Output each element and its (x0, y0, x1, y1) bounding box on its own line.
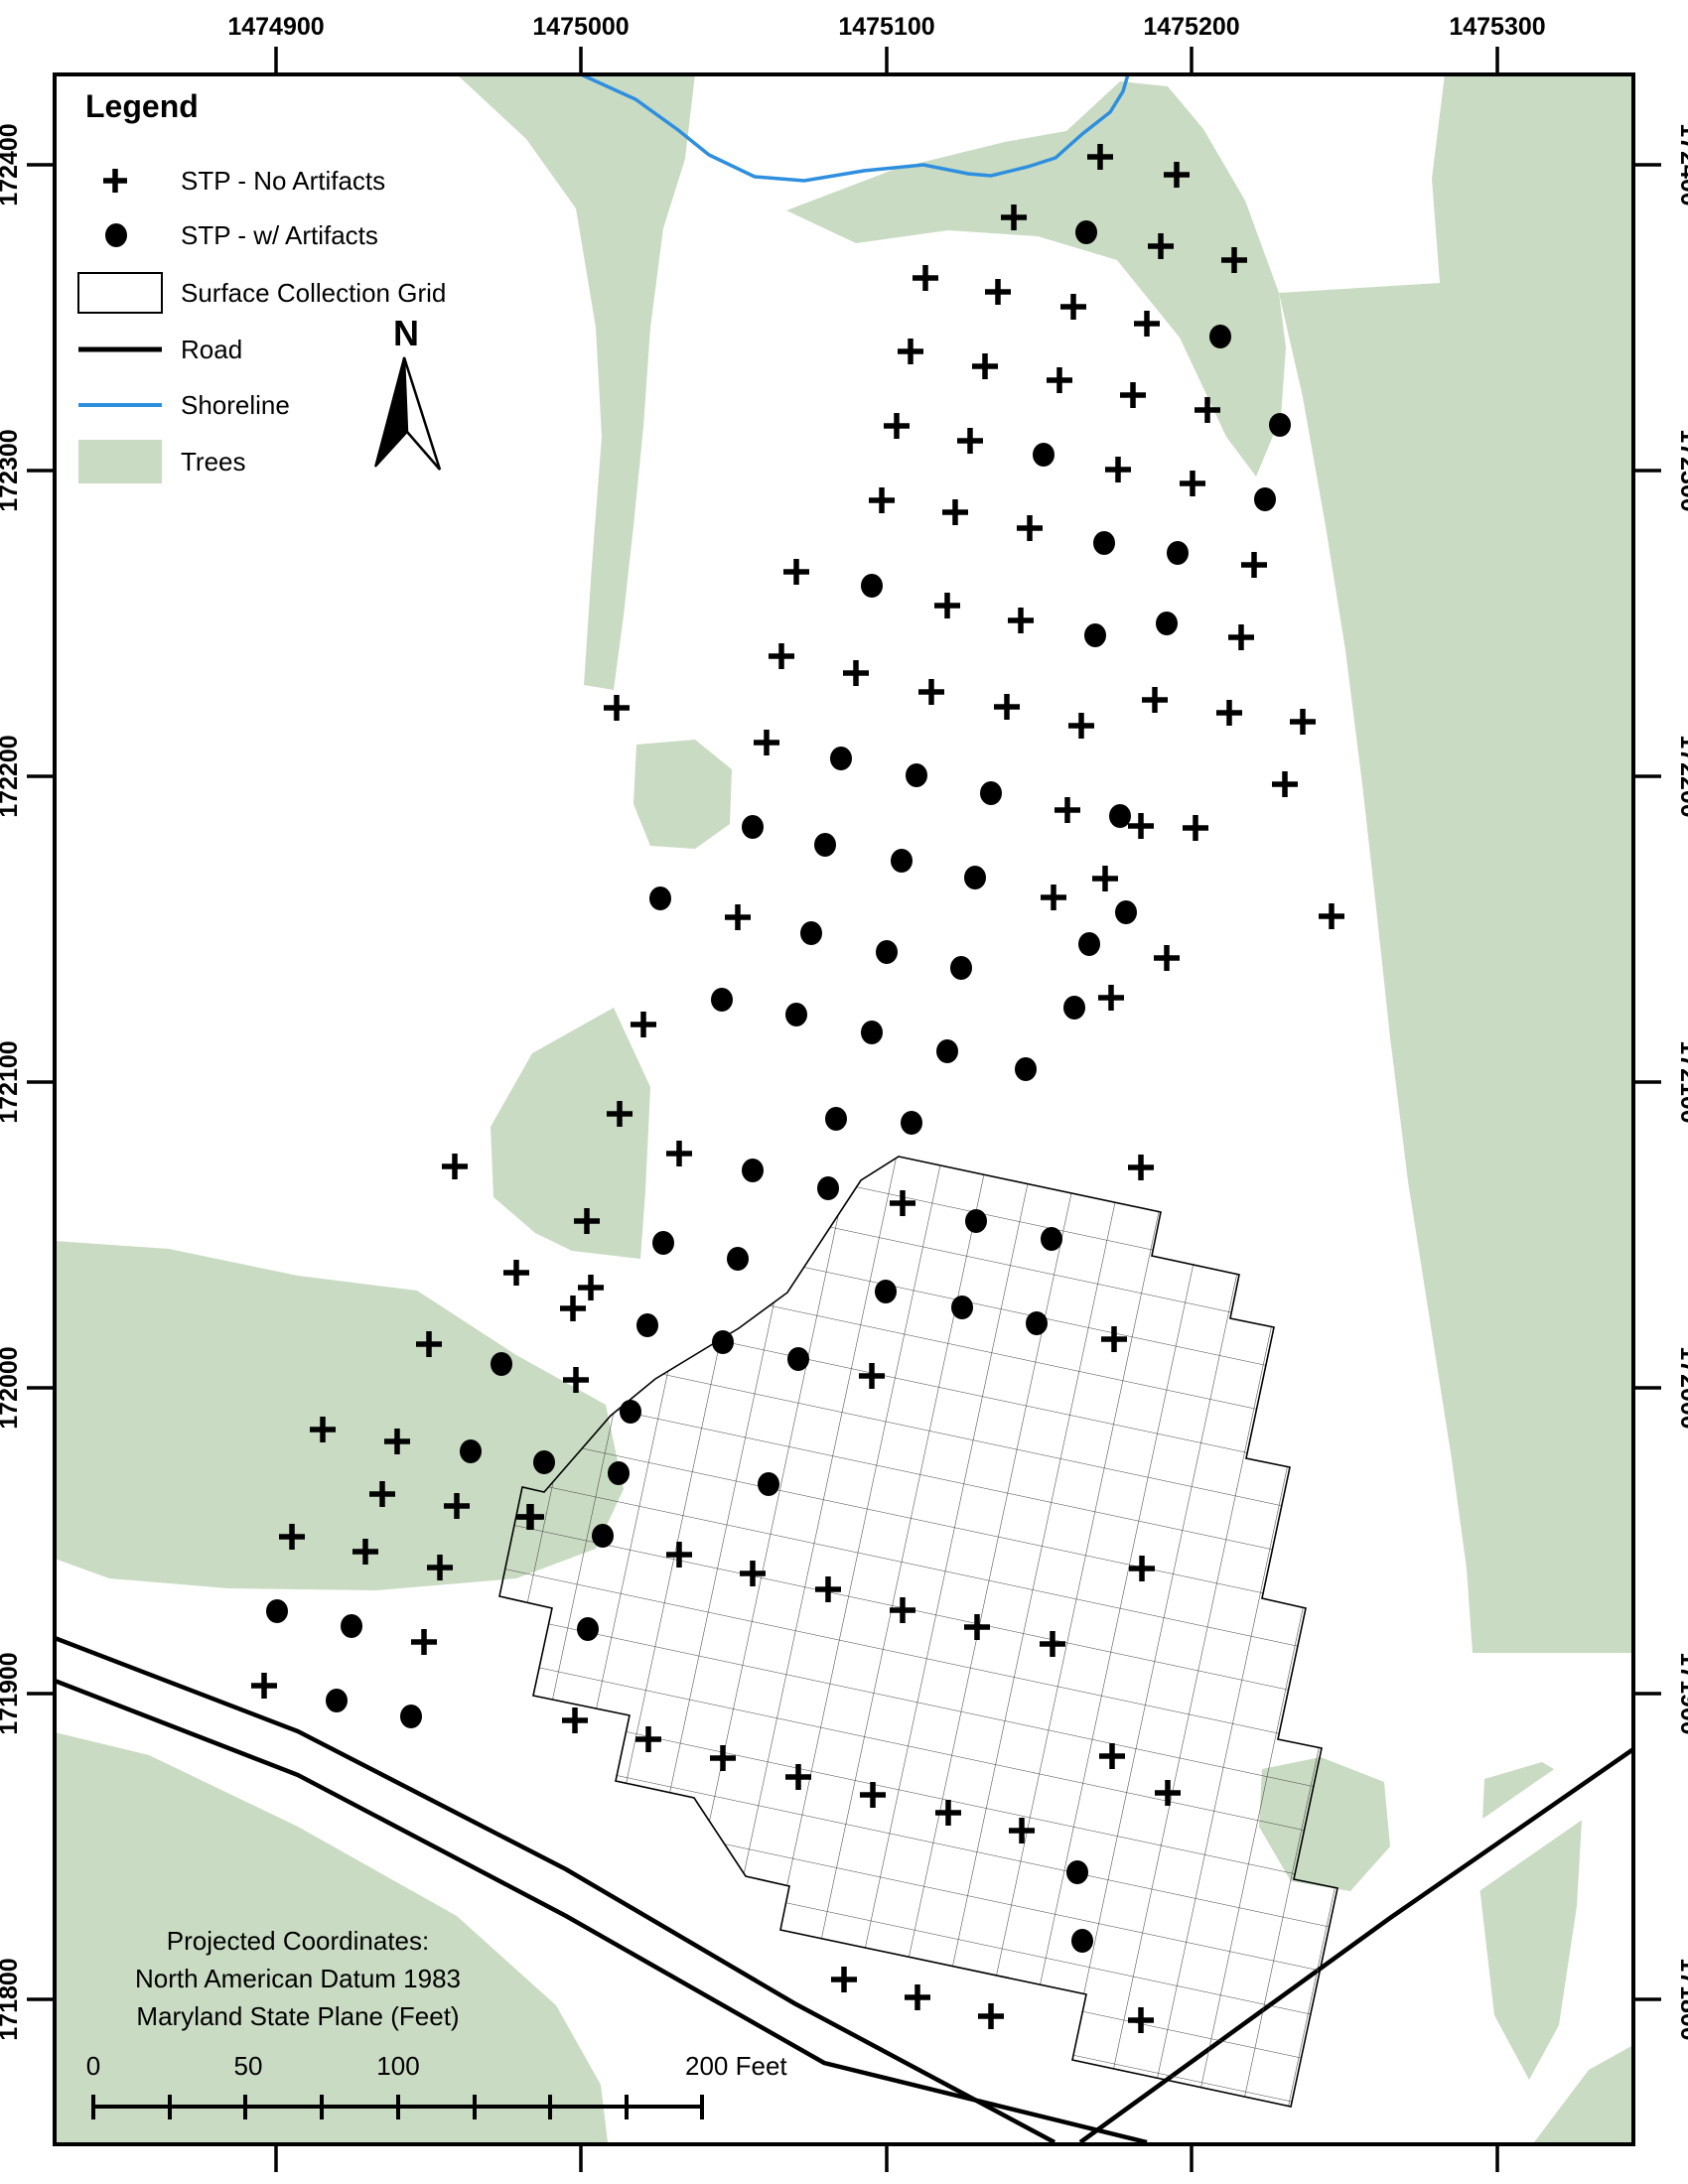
stp-with-artifacts-point[interactable] (620, 1400, 641, 1424)
trees-polygon (491, 1008, 650, 1259)
stp-no-artifacts-point[interactable] (1319, 903, 1344, 929)
survey-map-page: 1474900147500014751001475200147530014749… (0, 0, 1688, 2184)
stp-no-artifacts-point[interactable] (1128, 813, 1154, 839)
stp-with-artifacts-point[interactable] (266, 1599, 288, 1623)
legend-item-surface-collection-grid: Surface Collection Grid (78, 273, 446, 313)
stp-with-artifacts-point[interactable] (326, 1689, 348, 1712)
plus-icon (103, 169, 127, 193)
stp-no-artifacts-point[interactable] (1120, 382, 1146, 408)
stp-no-artifacts-point[interactable] (560, 1296, 586, 1321)
projection-note-line: Maryland State Plane (Feet) (136, 2001, 459, 2031)
stp-no-artifacts-point[interactable] (1241, 552, 1267, 578)
axis-label-top: 1475300 (1449, 13, 1545, 41)
scale-bar-label: 50 (234, 2051, 263, 2081)
stp-with-artifacts-point[interactable] (1156, 612, 1178, 635)
stp-with-artifacts-point[interactable] (460, 1439, 482, 1463)
stp-with-artifacts-point[interactable] (649, 887, 671, 910)
stp-no-artifacts-point[interactable] (1092, 866, 1118, 891)
axis-label-right: 172100 (1675, 1040, 1688, 1123)
stp-with-artifacts-point[interactable] (965, 1209, 987, 1233)
stp-no-artifacts-point[interactable] (1068, 713, 1094, 739)
rect-icon (78, 273, 162, 313)
stp-with-artifacts-point[interactable] (964, 866, 986, 889)
stp-with-artifacts-point[interactable] (1033, 443, 1055, 467)
stp-no-artifacts-point[interactable] (1055, 797, 1080, 823)
stp-no-artifacts-point[interactable] (869, 487, 895, 513)
stp-with-artifacts-point[interactable] (814, 833, 836, 857)
stp-with-artifacts-point[interactable] (906, 763, 927, 787)
stp-no-artifacts-point[interactable] (957, 428, 983, 454)
stp-no-artifacts-point[interactable] (1008, 608, 1034, 633)
stp-with-artifacts-point[interactable] (1063, 996, 1085, 1020)
stp-no-artifacts-point[interactable] (942, 499, 968, 525)
stp-no-artifacts-point[interactable] (1154, 945, 1180, 971)
trees-polygon (786, 81, 1286, 477)
trees-polygon (1534, 2045, 1633, 2142)
stp-with-artifacts-point[interactable] (341, 1614, 362, 1638)
stp-no-artifacts-point[interactable] (503, 1260, 529, 1286)
stp-no-artifacts-point[interactable] (898, 339, 923, 364)
stp-with-artifacts-point[interactable] (533, 1450, 555, 1474)
stp-no-artifacts-point[interactable] (631, 1012, 656, 1037)
stp-with-artifacts-point[interactable] (652, 1231, 674, 1255)
legend-item-road: Road (78, 335, 242, 364)
stp-with-artifacts-point[interactable] (577, 1617, 599, 1641)
stp-no-artifacts-point[interactable] (578, 1275, 604, 1300)
scale-bar-label: 0 (86, 2051, 100, 2081)
legend-item-label: STP - No Artifacts (181, 166, 385, 196)
stp-with-artifacts-point[interactable] (1015, 1057, 1037, 1081)
stp-with-artifacts-point[interactable] (742, 1159, 764, 1182)
stp-no-artifacts-point[interactable] (1216, 700, 1242, 726)
scale-bar-label: 100 (376, 2051, 419, 2081)
stp-with-artifacts-point[interactable] (1041, 1227, 1062, 1251)
stp-with-artifacts-point[interactable] (785, 1003, 807, 1026)
stp-no-artifacts-point[interactable] (1290, 709, 1316, 735)
projection-note-line: North American Datum 1983 (135, 1964, 461, 1993)
stp-no-artifacts-point[interactable] (1105, 457, 1131, 482)
stp-no-artifacts-point[interactable] (442, 1154, 468, 1179)
legend-item-label: Road (181, 335, 242, 364)
dot-icon (105, 223, 127, 247)
stp-with-artifacts-point[interactable] (1026, 1311, 1048, 1335)
stp-with-artifacts-point[interactable] (1254, 487, 1276, 511)
stp-with-artifacts-point[interactable] (636, 1313, 658, 1337)
stp-with-artifacts-point[interactable] (830, 747, 852, 770)
legend-item-label: Trees (181, 447, 246, 477)
axis-label-left: 172100 (0, 1040, 23, 1123)
axis-label-top: 1475200 (1143, 13, 1239, 41)
stp-no-artifacts-point[interactable] (1134, 311, 1160, 337)
legend-item-shoreline: Shoreline (78, 390, 290, 420)
legend-item-label: Shoreline (181, 390, 290, 420)
stp-no-artifacts-point[interactable] (783, 559, 809, 585)
legend-item-trees: Trees (78, 440, 246, 483)
stp-with-artifacts-point[interactable] (901, 1111, 922, 1135)
stp-no-artifacts-point[interactable] (934, 593, 960, 618)
axis-label-left: 171900 (0, 1652, 23, 1734)
stp-with-artifacts-point[interactable] (758, 1472, 779, 1496)
stp-with-artifacts-point[interactable] (400, 1705, 422, 1728)
stp-with-artifacts-point[interactable] (1075, 220, 1097, 244)
stp-with-artifacts-point[interactable] (936, 1039, 958, 1063)
stp-no-artifacts-point[interactable] (994, 694, 1020, 720)
stp-no-artifacts-point[interactable] (1142, 687, 1168, 713)
stp-with-artifacts-point[interactable] (592, 1524, 614, 1548)
stp-no-artifacts-point[interactable] (1183, 815, 1208, 841)
stp-with-artifacts-point[interactable] (817, 1176, 839, 1200)
stp-with-artifacts-point[interactable] (891, 849, 913, 873)
stp-no-artifacts-point[interactable] (754, 730, 779, 755)
stp-no-artifacts-point[interactable] (972, 353, 998, 379)
stp-no-artifacts-point[interactable] (604, 695, 630, 721)
legend-item-stp-no-artifacts: STP - No Artifacts (103, 166, 385, 196)
stp-no-artifacts-point[interactable] (1128, 1155, 1154, 1180)
legend-item-label: STP - w/ Artifacts (181, 220, 378, 250)
axis-label-left: 172200 (0, 735, 23, 817)
stp-no-artifacts-point[interactable] (985, 279, 1011, 305)
trees-fill-icon (78, 440, 162, 483)
stp-with-artifacts-point[interactable] (787, 1347, 809, 1371)
stp-with-artifacts-point[interactable] (980, 781, 1002, 805)
stp-no-artifacts-point[interactable] (843, 660, 869, 686)
stp-with-artifacts-point[interactable] (1209, 325, 1231, 348)
stp-with-artifacts-point[interactable] (1269, 413, 1291, 437)
stp-no-artifacts-point[interactable] (905, 1984, 930, 2010)
stp-with-artifacts-point[interactable] (711, 988, 733, 1012)
stp-no-artifacts-point[interactable] (769, 643, 794, 669)
stp-no-artifacts-point[interactable] (1180, 471, 1205, 496)
projection-note-line: Projected Coordinates: (167, 1926, 429, 1956)
stp-with-artifacts-point[interactable] (861, 574, 883, 598)
stp-no-artifacts-point[interactable] (666, 1141, 692, 1166)
axis-label-left: 172300 (0, 429, 23, 511)
axis-label-left: 171800 (0, 1958, 23, 2040)
stp-no-artifacts-point[interactable] (411, 1629, 437, 1655)
stp-with-artifacts-point[interactable] (1078, 932, 1100, 956)
legend-item-stp-artifacts: STP - w/ Artifacts (105, 220, 378, 250)
stp-with-artifacts-point[interactable] (800, 921, 822, 945)
stp-no-artifacts-point[interactable] (725, 904, 751, 930)
stp-no-artifacts-point[interactable] (1047, 367, 1072, 393)
stp-with-artifacts-point[interactable] (491, 1352, 512, 1376)
stp-no-artifacts-point[interactable] (831, 1967, 857, 1992)
stp-no-artifacts-point[interactable] (913, 265, 938, 291)
stp-with-artifacts-point[interactable] (1084, 623, 1106, 647)
stp-with-artifacts-point[interactable] (825, 1107, 847, 1131)
stp-with-artifacts-point[interactable] (742, 815, 764, 839)
axis-label-left: 172400 (0, 123, 23, 205)
stp-no-artifacts-point[interactable] (562, 1707, 588, 1733)
stp-no-artifacts-point[interactable] (978, 2003, 1004, 2029)
map-canvas[interactable]: 1474900147500014751001475200147530014749… (0, 0, 1688, 2184)
stp-no-artifacts-point[interactable] (1228, 624, 1254, 650)
stp-no-artifacts-point[interactable] (1017, 515, 1043, 541)
stp-no-artifacts-point[interactable] (884, 413, 910, 439)
north-arrow-icon: N (375, 313, 440, 470)
axis-label-left: 172000 (0, 1346, 23, 1429)
legend-item-label: Surface Collection Grid (181, 278, 446, 308)
stp-with-artifacts-point[interactable] (950, 956, 972, 980)
trees-polygon (1279, 74, 1633, 1653)
scale-bar-label: 200 Feet (685, 2051, 787, 2081)
stp-with-artifacts-point[interactable] (876, 940, 898, 964)
axis-label-right: 172000 (1675, 1346, 1688, 1429)
axis-label-right: 172400 (1675, 123, 1688, 205)
stp-with-artifacts-point[interactable] (1115, 900, 1137, 924)
stp-with-artifacts-point[interactable] (1167, 541, 1189, 565)
axis-label-top: 1475100 (838, 13, 934, 41)
stp-no-artifacts-point[interactable] (1272, 771, 1298, 797)
axis-label-right: 171900 (1675, 1652, 1688, 1734)
stp-no-artifacts-point[interactable] (1060, 294, 1086, 320)
axis-label-right: 171800 (1675, 1958, 1688, 2040)
stp-with-artifacts-point[interactable] (951, 1296, 973, 1319)
axis-label-top: 1475000 (532, 13, 629, 41)
north-label: N (393, 313, 419, 353)
stp-with-artifacts-point[interactable] (608, 1461, 630, 1485)
projection-note: Projected Coordinates: North American Da… (135, 1926, 461, 2031)
stp-with-artifacts-point[interactable] (1109, 804, 1131, 828)
legend-title: Legend (85, 88, 199, 124)
stp-with-artifacts-point[interactable] (875, 1280, 897, 1303)
trees-polygon (633, 740, 732, 849)
stp-no-artifacts-point[interactable] (918, 679, 944, 705)
stp-with-artifacts-point[interactable] (727, 1247, 749, 1271)
trees-polygon (457, 74, 695, 690)
axis-label-top: 1474900 (227, 13, 324, 41)
stp-with-artifacts-point[interactable] (1071, 1929, 1093, 1953)
axis-label-right: 172300 (1675, 429, 1688, 511)
stp-with-artifacts-point[interactable] (712, 1330, 734, 1354)
stp-no-artifacts-point[interactable] (1041, 885, 1066, 910)
stp-with-artifacts-point[interactable] (1093, 531, 1115, 555)
stp-with-artifacts-point[interactable] (1066, 1860, 1088, 1884)
stp-with-artifacts-point[interactable] (861, 1021, 883, 1044)
axis-label-right: 172200 (1675, 735, 1688, 817)
stp-no-artifacts-point[interactable] (1098, 985, 1124, 1011)
